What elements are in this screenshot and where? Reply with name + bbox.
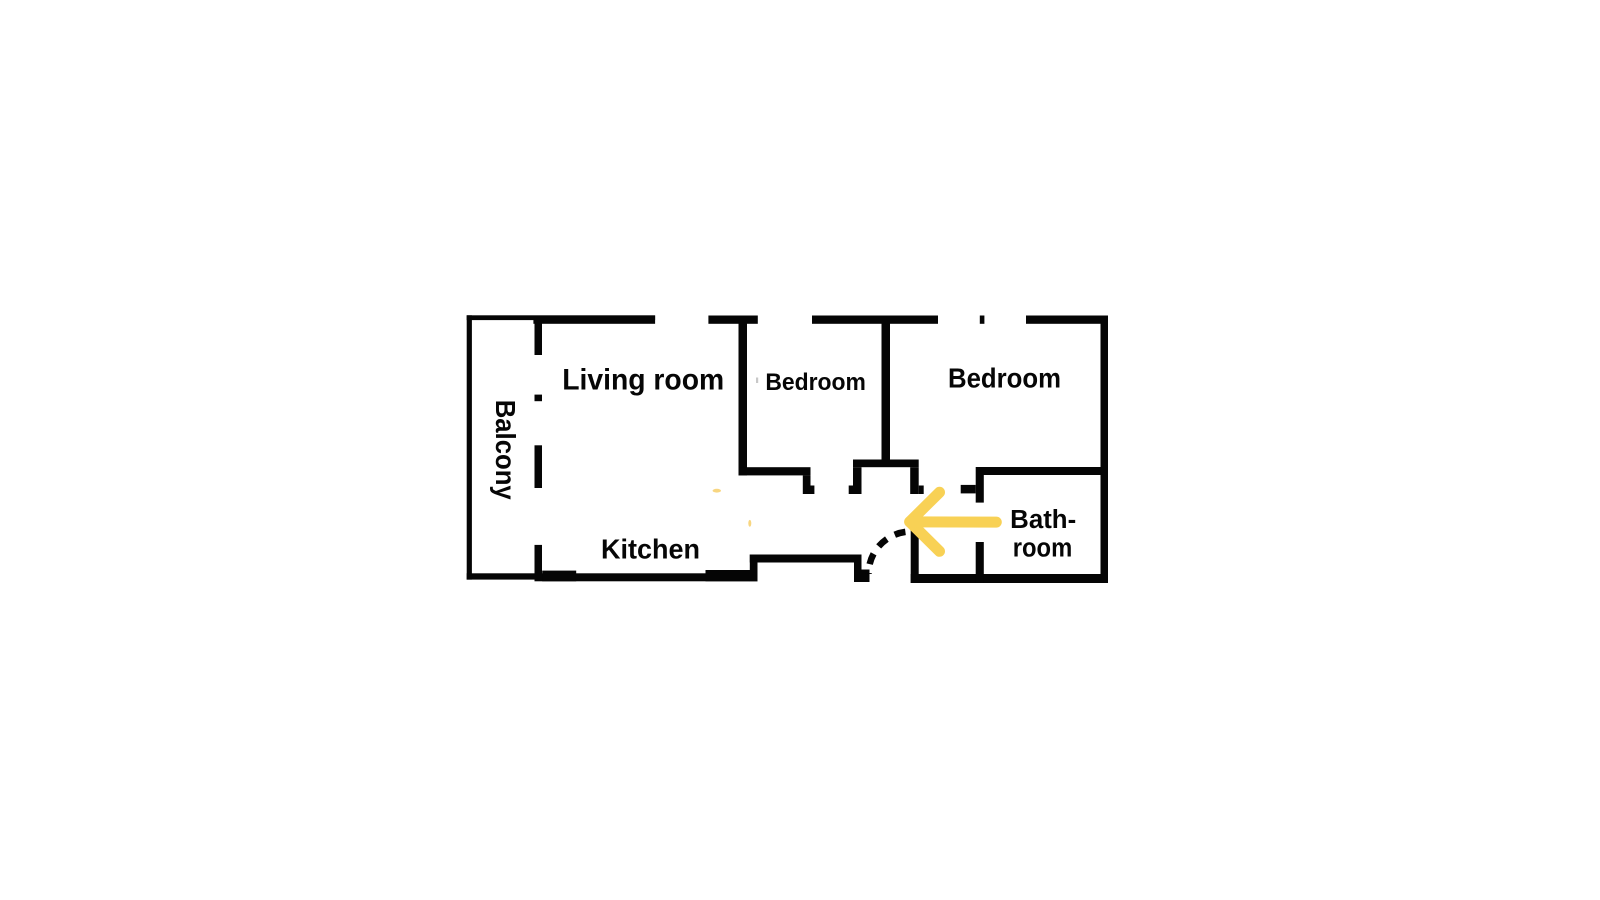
svg-text:Balcony: Balcony xyxy=(490,400,521,501)
svg-text:Kitchen: Kitchen xyxy=(601,534,700,565)
svg-text:room: room xyxy=(1013,535,1073,563)
svg-text:Living room: Living room xyxy=(562,364,724,397)
svg-text:Bedroom: Bedroom xyxy=(765,369,866,396)
svg-text:Bedroom: Bedroom xyxy=(948,363,1061,394)
svg-text:Bath-: Bath- xyxy=(1010,506,1076,534)
